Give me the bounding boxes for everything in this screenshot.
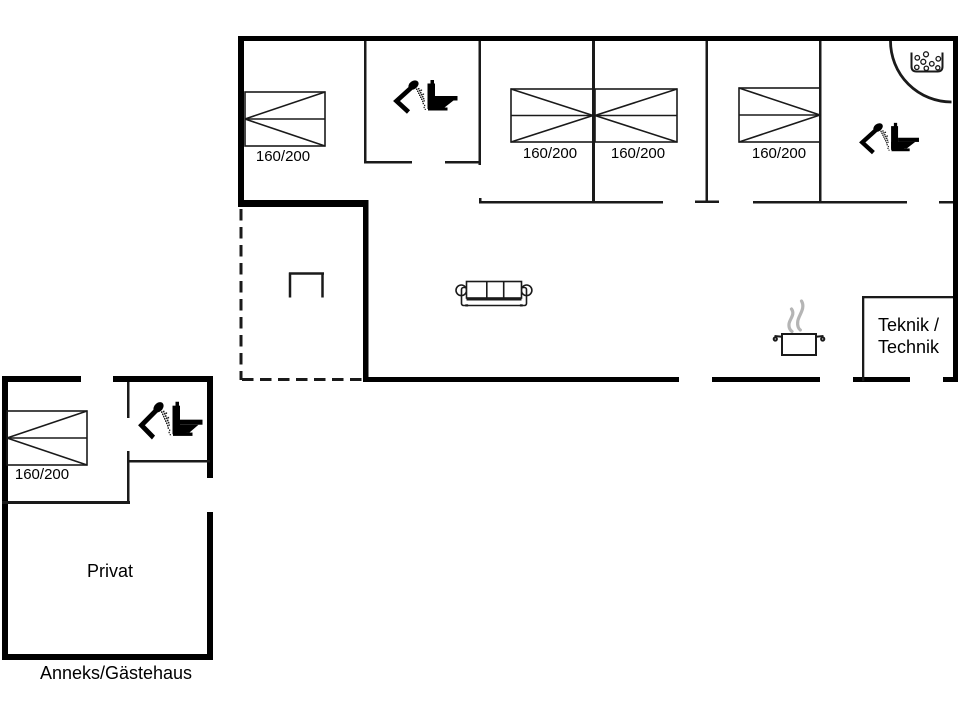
svg-text:Teknik /: Teknik / bbox=[878, 315, 939, 335]
svg-text:Anneks/Gästehaus: Anneks/Gästehaus bbox=[40, 663, 192, 683]
svg-text:160/200: 160/200 bbox=[256, 148, 310, 165]
svg-text:160/200: 160/200 bbox=[752, 145, 806, 162]
svg-text:160/200: 160/200 bbox=[523, 145, 577, 162]
svg-text:Technik: Technik bbox=[878, 337, 940, 357]
svg-text:Privat: Privat bbox=[87, 561, 133, 581]
svg-text:160/200: 160/200 bbox=[611, 145, 665, 162]
svg-text:160/200: 160/200 bbox=[15, 466, 69, 483]
